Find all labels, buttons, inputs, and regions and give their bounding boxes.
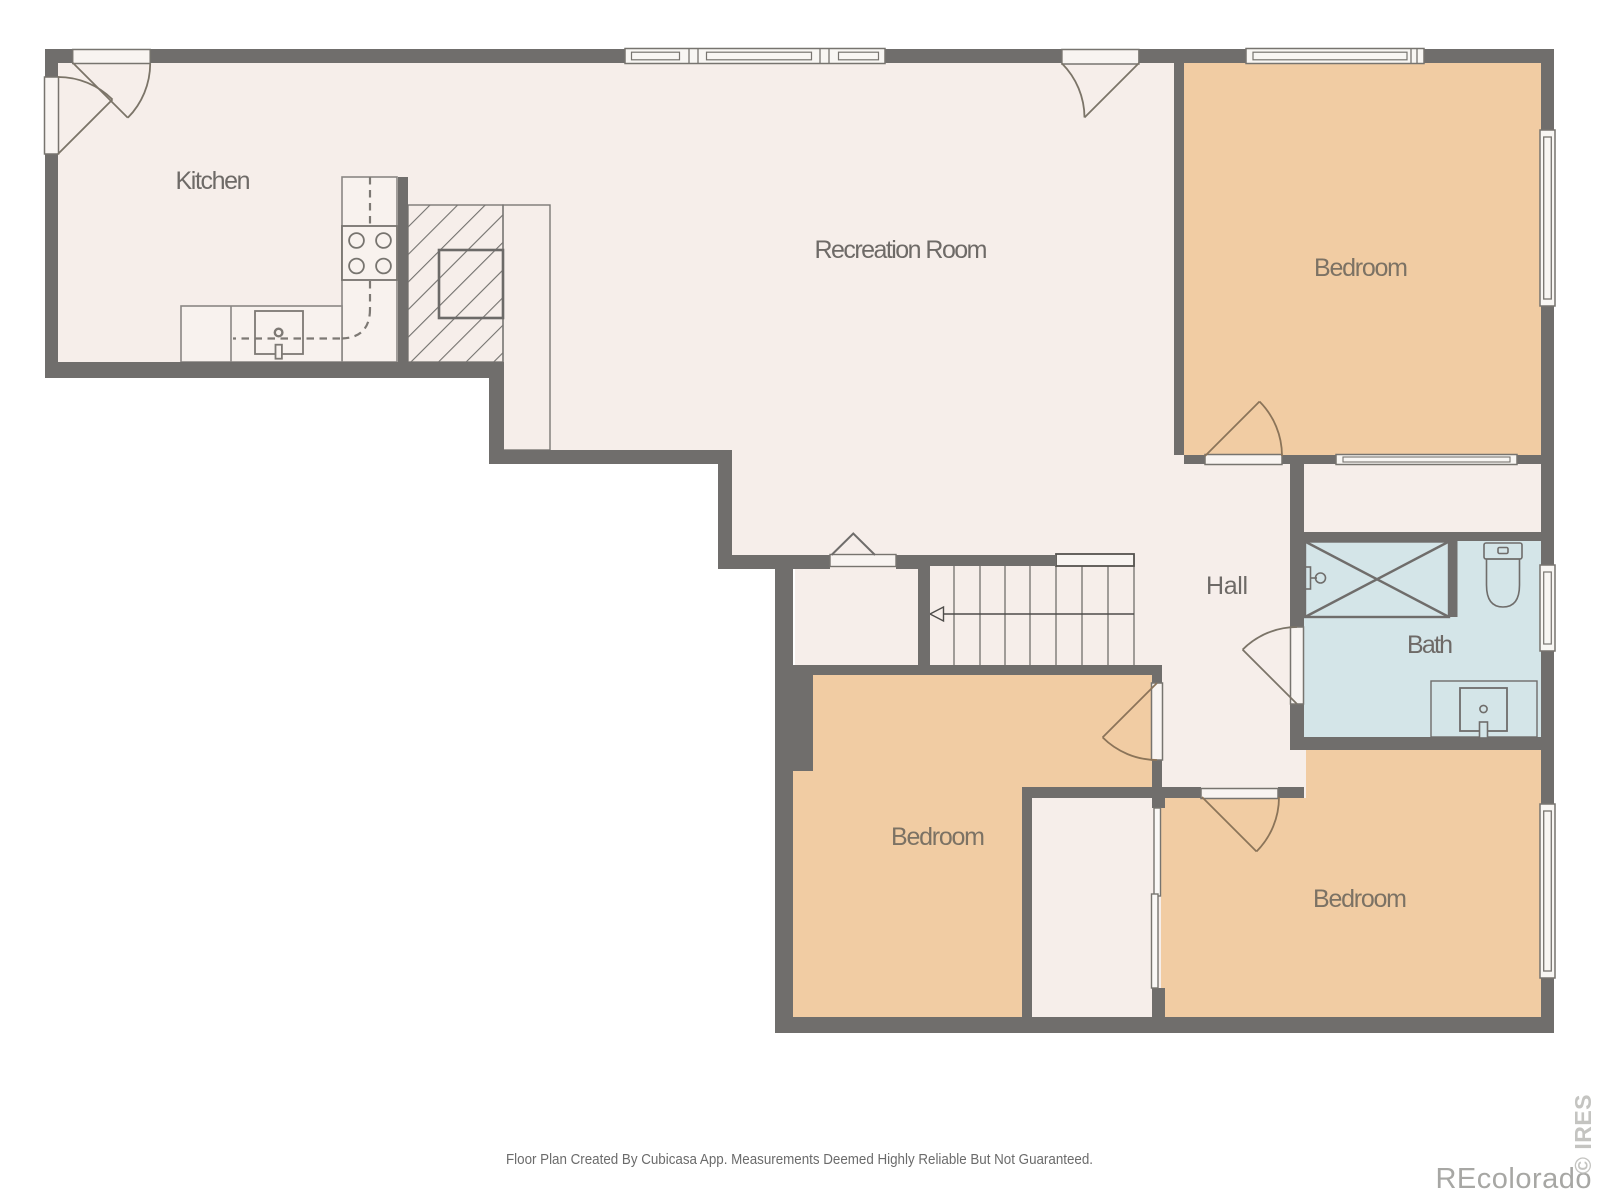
svg-text:Bedroom: Bedroom	[891, 823, 985, 851]
svg-text:Hall: Hall	[1206, 572, 1248, 600]
svg-text:Kitchen: Kitchen	[176, 167, 251, 195]
svg-text:Bedroom: Bedroom	[1313, 885, 1407, 913]
svg-text:REcolorado: REcolorado	[1435, 1163, 1592, 1195]
svg-text:Bedroom: Bedroom	[1314, 254, 1408, 282]
svg-text:Floor Plan Created By Cubicasa: Floor Plan Created By Cubicasa App. Meas…	[506, 1151, 1093, 1168]
svg-text:Bath: Bath	[1407, 631, 1453, 659]
svg-text:© IRES: © IRES	[1570, 1094, 1596, 1174]
svg-text:Recreation Room: Recreation Room	[815, 236, 988, 264]
